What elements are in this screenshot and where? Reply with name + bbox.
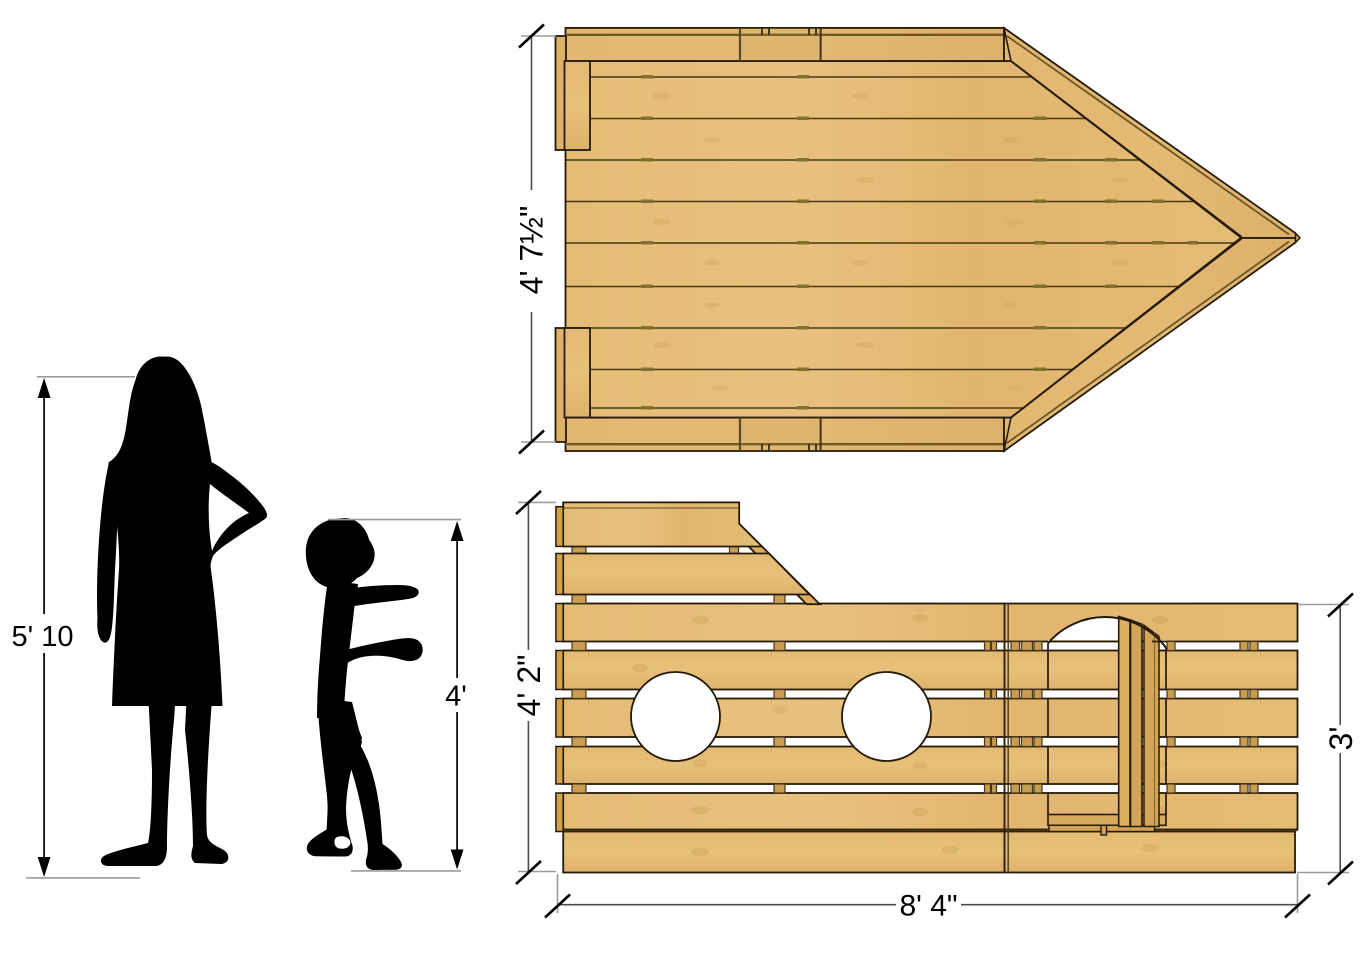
svg-text:3': 3' xyxy=(1323,727,1359,751)
svg-text:5' 10: 5' 10 xyxy=(12,621,74,653)
svg-text:4': 4' xyxy=(445,681,467,713)
svg-text:4' 2": 4' 2" xyxy=(511,655,547,717)
svg-text:4' 7½": 4' 7½" xyxy=(514,206,550,295)
svg-text:8' 4": 8' 4" xyxy=(899,890,957,923)
